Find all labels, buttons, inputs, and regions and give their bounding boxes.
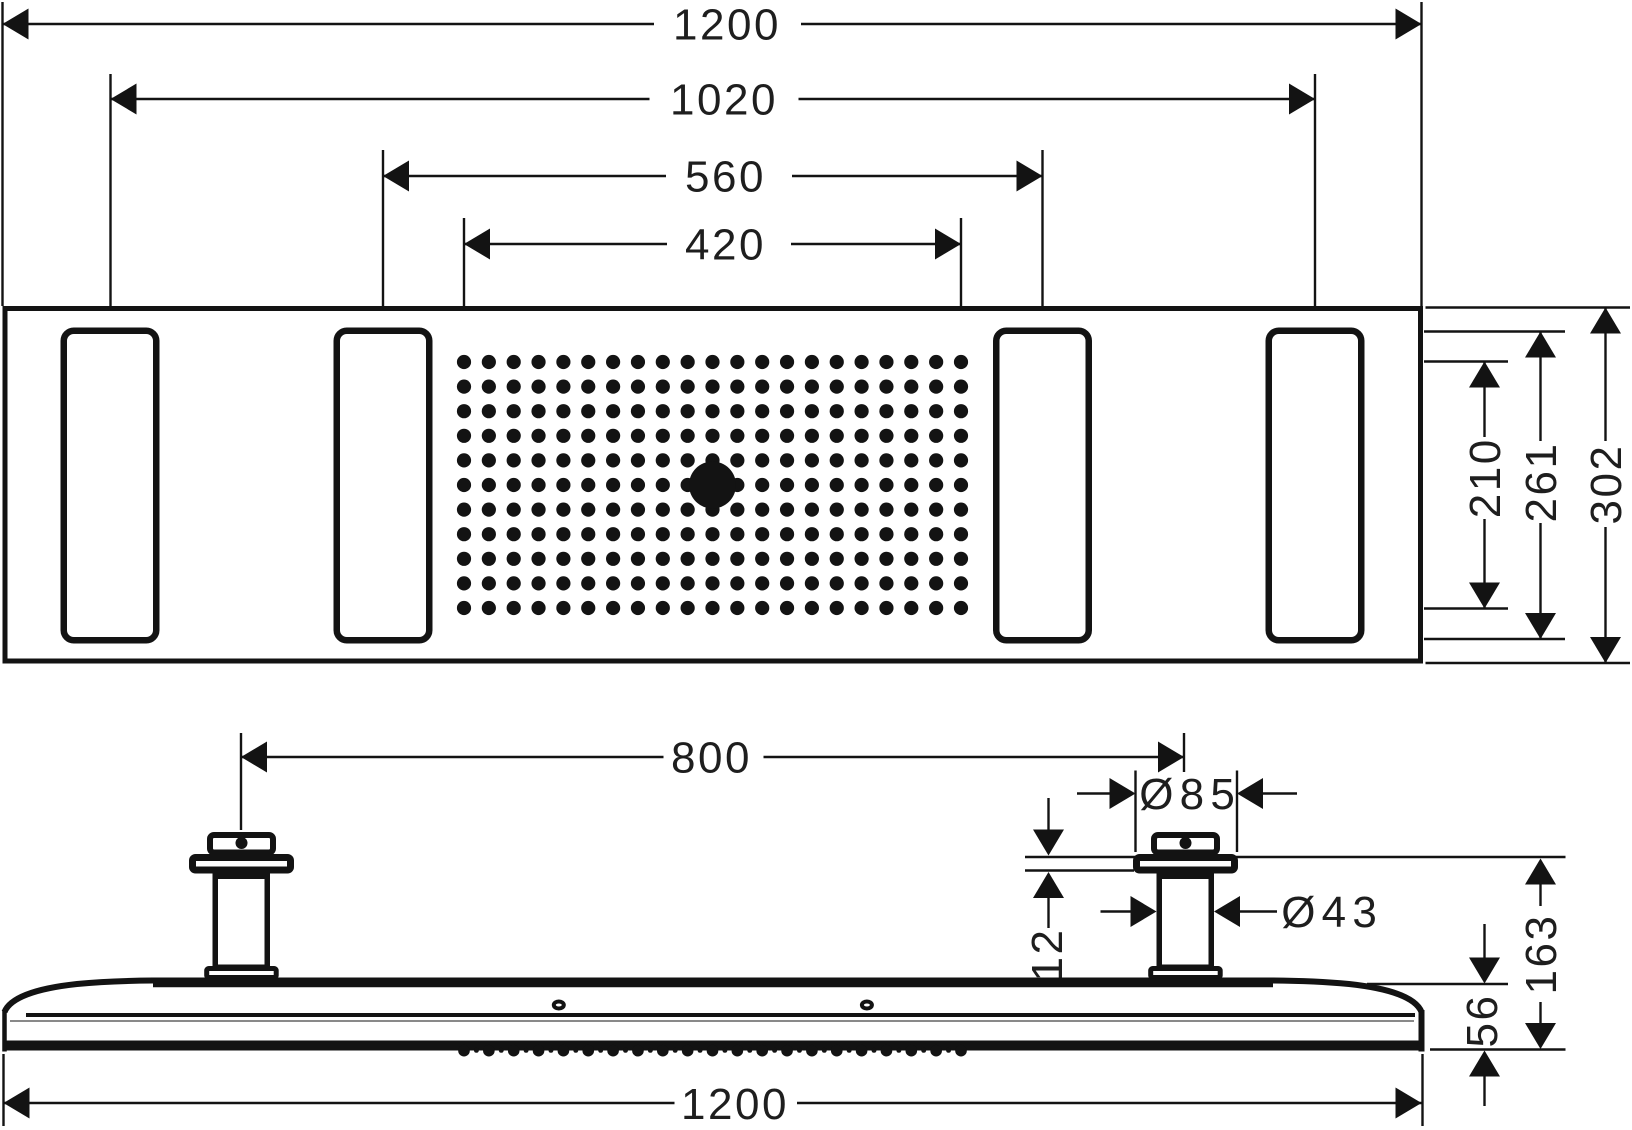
svg-text:56: 56 <box>1458 994 1507 1048</box>
svg-text:302: 302 <box>1582 444 1631 525</box>
svg-text:12: 12 <box>1023 928 1072 982</box>
svg-text:210: 210 <box>1461 437 1510 518</box>
svg-text:420: 420 <box>685 221 766 270</box>
svg-text:560: 560 <box>685 153 766 202</box>
svg-text:800: 800 <box>671 734 752 783</box>
svg-text:261: 261 <box>1517 442 1566 523</box>
svg-text:1200: 1200 <box>673 1 781 50</box>
svg-text:1200: 1200 <box>681 1080 789 1129</box>
svg-text:1020: 1020 <box>670 76 778 125</box>
svg-text:Ø 4 3: Ø 4 3 <box>1281 888 1376 937</box>
svg-text:Ø 8 5: Ø 8 5 <box>1139 770 1234 819</box>
svg-text:163: 163 <box>1517 914 1566 995</box>
